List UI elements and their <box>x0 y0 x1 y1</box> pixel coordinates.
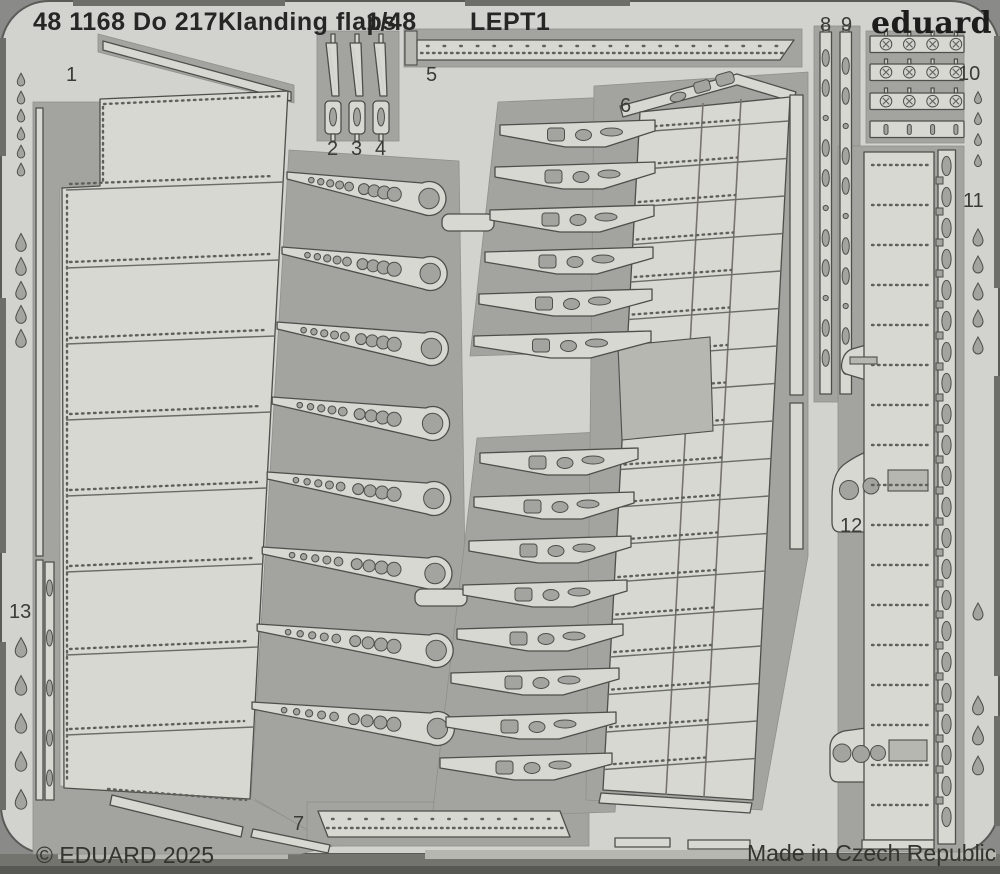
slot-hole <box>330 108 337 126</box>
rail-notch <box>936 301 943 308</box>
lightening-hole <box>324 255 331 262</box>
eduard-logo: eduard <box>871 6 992 41</box>
lightening-hole <box>375 561 388 574</box>
rib-slot <box>598 170 620 178</box>
lightening-hole <box>304 479 310 485</box>
rail-slot <box>942 559 951 578</box>
parts-2-3-4 <box>325 34 389 141</box>
lightening-hole <box>422 413 442 433</box>
part-label-5: 5 <box>426 64 437 86</box>
sprue-stem <box>931 88 934 93</box>
rail-notch <box>936 208 943 215</box>
rail-slot <box>822 140 829 157</box>
lightening-hole <box>387 639 401 653</box>
lightening-hole <box>318 179 324 185</box>
rib-slot <box>586 339 608 347</box>
part7-body <box>318 811 570 837</box>
lightening-hole <box>325 481 333 489</box>
rail-slot <box>942 373 951 392</box>
lightening-hole <box>853 746 870 763</box>
right-edge-gap <box>994 716 1000 826</box>
model-name: Do 217K <box>133 8 237 36</box>
lightening-hole <box>387 487 401 501</box>
lightening-hole <box>863 478 879 494</box>
sprue-stem <box>908 88 911 93</box>
lightening-hole <box>426 640 446 660</box>
rail-notch <box>936 611 943 618</box>
rail-hole <box>823 205 828 210</box>
lightening-hole <box>311 329 317 335</box>
part-7-strip <box>318 811 570 837</box>
etched-panel <box>888 470 928 491</box>
rail-slot <box>842 58 849 75</box>
top-edge-gap <box>465 0 630 6</box>
rail-notch <box>936 673 943 680</box>
lightening-hole <box>334 557 343 566</box>
rib-slot <box>549 761 571 769</box>
rail-slot <box>842 178 849 195</box>
rail-slot <box>942 497 951 516</box>
slot-hole <box>47 680 53 696</box>
left-edge-gap <box>0 38 6 156</box>
rail-slot <box>942 435 951 454</box>
rail-slot <box>842 268 849 285</box>
lightening-hole <box>351 559 362 570</box>
lightening-hole <box>387 337 401 351</box>
rib-slot <box>529 456 546 469</box>
lightening-hole <box>356 334 367 345</box>
slot-hole <box>47 770 53 786</box>
lightening-hole <box>364 485 376 497</box>
lightening-hole <box>833 744 851 762</box>
lightening-hole <box>363 560 375 572</box>
lightening-hole <box>419 188 439 208</box>
part-label-11: 11 <box>963 190 984 212</box>
rail-slot <box>842 328 849 345</box>
sprue-stem <box>954 88 957 93</box>
lightening-hole <box>375 638 388 651</box>
rail-slot <box>942 776 951 795</box>
rail-notch <box>936 177 943 184</box>
slot-hole <box>354 108 361 126</box>
lightening-hole <box>309 632 316 639</box>
slot-hole <box>378 108 385 126</box>
part-label-13: 13 <box>9 601 31 623</box>
part-label-3: 3 <box>351 138 362 160</box>
lightening-hole <box>285 629 291 635</box>
rail-slot <box>942 528 951 547</box>
rail-slot <box>942 404 951 423</box>
rail-slot <box>942 683 951 702</box>
photoetch-sheet-scan: 48 1168 Do 217K landing flaps 1/48 LEPT1… <box>0 0 1000 874</box>
rib-slot <box>510 632 527 645</box>
lightening-hole <box>358 184 369 195</box>
rail-hole <box>843 123 848 128</box>
lightening-hole <box>318 711 326 719</box>
lightening-hole <box>315 480 322 487</box>
lightening-hole <box>366 335 378 347</box>
rail-slot <box>822 170 829 187</box>
sprue-stem <box>885 59 888 64</box>
right-edge-gap <box>994 36 1000 288</box>
bottom-frame-tab <box>425 850 777 859</box>
rail-hole <box>823 295 828 300</box>
sprue-stem <box>885 88 888 93</box>
left-edge-gap <box>0 298 6 553</box>
rail-notch <box>936 487 943 494</box>
part5-body <box>417 40 794 60</box>
rail-notch <box>936 518 943 525</box>
part-label-9: 9 <box>841 14 852 36</box>
lightening-hole <box>425 563 445 583</box>
part6-rib-hook-arm <box>442 214 494 231</box>
rail-notch <box>936 394 943 401</box>
lightening-hole <box>345 182 354 191</box>
rib-slot <box>505 676 522 689</box>
catalog-number: 48 1168 <box>33 8 126 36</box>
lightening-hole <box>318 405 325 412</box>
rib-slot <box>536 297 553 310</box>
rail-notch <box>936 270 943 277</box>
lightening-hole <box>387 562 401 576</box>
rib-slot <box>524 763 540 774</box>
lightening-hole <box>331 331 339 339</box>
lightening-hole <box>340 332 349 341</box>
lightening-hole <box>424 488 444 508</box>
sheet-code: LEPT1 <box>470 8 550 36</box>
rail-slot <box>942 466 951 485</box>
slot-hole <box>47 580 53 596</box>
etched-bar <box>850 357 877 364</box>
lightening-hole <box>281 707 287 713</box>
lightening-hole <box>297 631 303 637</box>
rail-slot <box>942 745 951 764</box>
rib-slot <box>542 213 559 226</box>
lightening-hole <box>333 256 341 264</box>
slot-hole <box>884 125 888 135</box>
slot-hole <box>954 125 958 135</box>
rail-slot <box>822 320 829 337</box>
lightening-hole <box>306 710 313 717</box>
rib-slot <box>501 720 518 733</box>
rib-slot <box>548 128 565 141</box>
rib-slot <box>577 500 599 508</box>
part-label-1: 1 <box>66 64 77 86</box>
rail-slot <box>942 590 951 609</box>
rib-slot <box>573 544 595 552</box>
lightening-hole <box>300 554 306 560</box>
right-edge-gap <box>994 376 1000 676</box>
rail-notch <box>936 332 943 339</box>
rail-notch <box>936 549 943 556</box>
rib-slot <box>533 339 550 352</box>
rail-slot <box>842 88 849 105</box>
copyright-text: © EDUARD 2025 <box>36 842 214 868</box>
lightening-hole <box>327 180 334 187</box>
rib-slot <box>592 255 614 263</box>
rail-slot <box>822 50 829 67</box>
fret-canvas: 48 1168 Do 217K landing flaps 1/48 LEPT1… <box>0 0 1000 874</box>
lightening-hole <box>320 633 328 641</box>
part13-strip <box>36 108 43 556</box>
part5-end-block <box>405 31 417 65</box>
part1-body <box>62 91 288 799</box>
part13-strip <box>36 560 43 800</box>
rail-hole <box>843 213 848 218</box>
lightening-hole <box>338 407 347 416</box>
lightening-hole <box>387 262 401 276</box>
rail-slot <box>942 156 951 175</box>
rib-slot <box>573 172 589 183</box>
lightening-hole <box>376 486 389 499</box>
lightening-hole <box>297 402 303 408</box>
lightening-hole <box>305 252 311 258</box>
left-edge-gap <box>0 642 6 810</box>
lightening-hole <box>314 254 320 260</box>
lightening-hole <box>301 327 307 333</box>
rail-slot <box>942 714 951 733</box>
lightening-hole <box>332 634 341 643</box>
rib-slot <box>524 500 541 513</box>
part-label-10: 10 <box>958 63 980 85</box>
sprue-stem <box>931 59 934 64</box>
lightening-hole <box>420 263 440 283</box>
lightening-hole <box>357 259 368 270</box>
rib-slot <box>558 676 580 684</box>
lightening-hole <box>330 712 339 721</box>
rail-notch <box>936 363 943 370</box>
part-label-4: 4 <box>375 138 386 160</box>
part-label-2: 2 <box>327 138 338 160</box>
rail-slot <box>842 238 849 255</box>
lightening-hole <box>307 404 313 410</box>
lightening-hole <box>323 556 331 564</box>
lightening-hole <box>361 715 373 727</box>
rail-slot <box>822 230 829 247</box>
part6-rib-hook-arm <box>415 589 467 606</box>
part-label-7: 7 <box>293 813 304 835</box>
rib-slot <box>496 761 513 774</box>
rib-slot <box>601 128 623 136</box>
rib-slot <box>567 257 583 268</box>
lightening-hole <box>387 717 401 731</box>
rib-slot <box>557 458 573 469</box>
lightening-hole <box>321 330 328 337</box>
rail-slot <box>842 148 849 165</box>
rib-slot <box>568 588 590 596</box>
rib-slot <box>539 255 556 268</box>
frame-bar <box>790 403 803 549</box>
rail-notch <box>936 704 943 711</box>
rail-slot <box>942 187 951 206</box>
rail-notch <box>936 797 943 804</box>
rib-slot <box>576 130 592 141</box>
part-label-12: 12 <box>840 515 862 537</box>
lightening-hole <box>871 746 886 761</box>
rail-notch <box>936 239 943 246</box>
rail-hole <box>823 115 828 120</box>
rail-notch <box>936 642 943 649</box>
lightening-hole <box>289 552 295 558</box>
rib-slot <box>595 213 617 221</box>
lightening-hole <box>387 187 401 201</box>
rib-slot <box>548 546 564 557</box>
lightening-hole <box>343 257 352 266</box>
top-edge-gap <box>73 0 285 6</box>
frame-tab <box>615 838 670 847</box>
rib-slot <box>533 678 549 689</box>
lightening-hole <box>293 709 299 715</box>
rail-slot <box>942 807 951 826</box>
lightening-hole <box>427 718 447 738</box>
rib-slot <box>545 170 562 183</box>
lightening-hole <box>354 409 365 420</box>
rib-slot <box>563 632 585 640</box>
rail-hole <box>843 303 848 308</box>
part-label-8: 8 <box>820 14 831 36</box>
rail-notch <box>936 456 943 463</box>
part-label-6: 6 <box>620 95 631 117</box>
rib-slot <box>564 299 580 310</box>
rail-notch <box>936 735 943 742</box>
rib-slot <box>561 341 577 352</box>
etched-wedge-panel <box>618 337 713 440</box>
rail-slot <box>942 218 951 237</box>
rib-slot <box>520 544 537 557</box>
sprue-stem <box>954 59 957 64</box>
lightening-hole <box>365 410 377 422</box>
rib-slot <box>529 722 545 733</box>
frame-bar <box>790 95 803 395</box>
rib-slot <box>543 590 559 601</box>
frame-tab <box>688 840 750 849</box>
rail-slot <box>822 350 829 367</box>
rail-slot <box>942 621 951 640</box>
part11-body <box>864 152 934 840</box>
lightening-hole <box>336 482 345 491</box>
lightening-hole <box>350 636 361 647</box>
rib-slot <box>589 297 611 305</box>
slot-hole <box>931 125 935 135</box>
rail-slot <box>942 280 951 299</box>
lightening-hole <box>336 181 344 189</box>
rail-slot <box>942 652 951 671</box>
lightening-hole <box>353 484 364 495</box>
rail-slot <box>822 80 829 97</box>
lightening-hole <box>348 714 359 725</box>
rib-slot <box>552 502 568 513</box>
made-in-text: Made in Czech Republic <box>747 840 996 866</box>
lightening-hole <box>374 716 387 729</box>
rib-slot <box>570 215 586 226</box>
rib-slot <box>515 588 532 601</box>
etched-panel <box>889 740 927 761</box>
lightening-hole <box>309 177 315 183</box>
lightening-hole <box>293 477 299 483</box>
lightening-hole <box>840 481 859 500</box>
rail-slot <box>822 260 829 277</box>
rib-slot <box>538 634 554 645</box>
lightening-hole <box>362 637 374 649</box>
rail-notch <box>936 580 943 587</box>
rail-slot <box>942 311 951 330</box>
lightening-hole <box>312 555 319 562</box>
lightening-hole <box>328 406 336 414</box>
slot-hole <box>47 630 53 646</box>
slot-hole <box>907 125 911 135</box>
sprue-stem <box>908 59 911 64</box>
rib-slot <box>554 720 576 728</box>
rail-notch <box>936 425 943 432</box>
lightening-hole <box>387 412 401 426</box>
lightening-hole <box>421 338 441 358</box>
rib-slot <box>582 456 604 464</box>
rail-notch <box>936 766 943 773</box>
scale: 1/48 <box>366 8 417 36</box>
rail-slot <box>942 342 951 361</box>
slot-hole <box>47 730 53 746</box>
rail-slot <box>942 249 951 268</box>
